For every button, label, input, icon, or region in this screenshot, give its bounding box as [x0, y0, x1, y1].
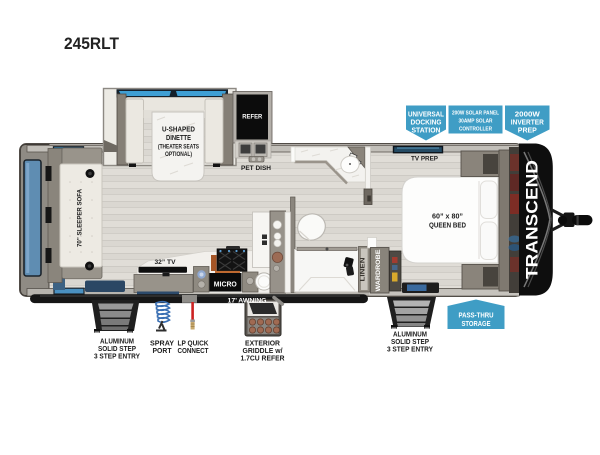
svg-text:QUEEN BED: QUEEN BED: [429, 221, 466, 230]
svg-text:17’ AWNING: 17’ AWNING: [228, 297, 267, 304]
svg-text:TRANSCEND: TRANSCEND: [523, 160, 542, 279]
svg-text:OPTIONAL): OPTIONAL): [165, 151, 192, 158]
svg-text:PREP: PREP: [518, 126, 537, 135]
svg-text:30AMP SOLAR: 30AMP SOLAR: [459, 119, 494, 125]
svg-text:DINETTE: DINETTE: [166, 133, 191, 142]
svg-text:200W SOLAR PANEL: 200W SOLAR PANEL: [452, 111, 499, 117]
svg-text:REFER: REFER: [242, 114, 262, 121]
svg-text:(THEATER SEATS: (THEATER SEATS: [158, 144, 199, 151]
svg-text:CONTROLLER: CONTROLLER: [459, 127, 493, 133]
svg-text:STORAGE: STORAGE: [462, 319, 491, 328]
svg-text:245RLT: 245RLT: [64, 34, 120, 53]
svg-text:70” SLEEPER SOFA: 70” SLEEPER SOFA: [77, 189, 84, 247]
svg-text:WARDROBE: WARDROBE: [375, 249, 382, 292]
svg-text:3 STEP ENTRY: 3 STEP ENTRY: [94, 352, 140, 361]
svg-text:LINEN: LINEN: [361, 258, 367, 282]
svg-text:STATION: STATION: [412, 126, 441, 135]
svg-text:3 STEP ENTRY: 3 STEP ENTRY: [387, 345, 433, 354]
svg-text:32” TV: 32” TV: [155, 259, 176, 266]
svg-text:1.7CU REFER: 1.7CU REFER: [241, 354, 286, 363]
svg-text:TV PREP: TV PREP: [411, 156, 438, 163]
svg-text:PORT: PORT: [153, 346, 173, 355]
svg-text:PET DISH: PET DISH: [241, 165, 271, 172]
svg-text:CONNECT: CONNECT: [178, 346, 210, 355]
svg-text:MICRO: MICRO: [214, 280, 237, 289]
svg-text:60” x 80”: 60” x 80”: [432, 212, 463, 221]
